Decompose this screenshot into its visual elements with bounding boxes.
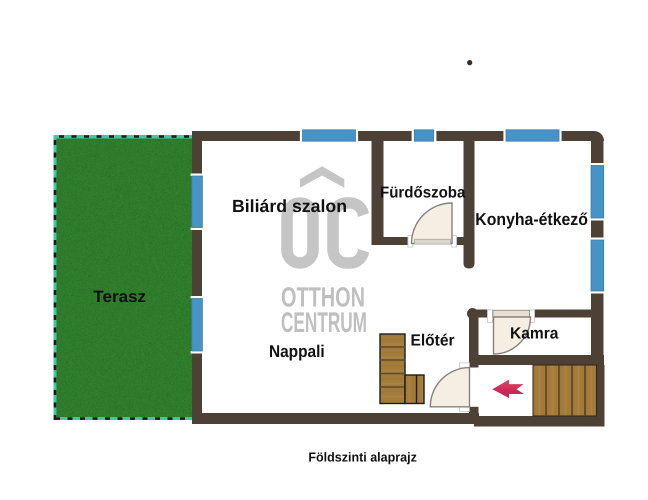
svg-text:Nappali: Nappali	[269, 342, 325, 361]
svg-text:Fürdőszoba: Fürdőszoba	[380, 184, 466, 201]
svg-text:CENTRUM: CENTRUM	[281, 307, 367, 339]
svg-text:Kamra: Kamra	[510, 325, 559, 343]
svg-text:Biliárd szalon: Biliárd szalon	[232, 196, 347, 216]
svg-text:Terasz: Terasz	[93, 288, 146, 306]
svg-text:Konyha-étkező: Konyha-étkező	[475, 209, 588, 229]
svg-text:Földszinti alaprajz: Földszinti alaprajz	[308, 450, 417, 465]
svg-text:Előtér: Előtér	[411, 332, 456, 350]
